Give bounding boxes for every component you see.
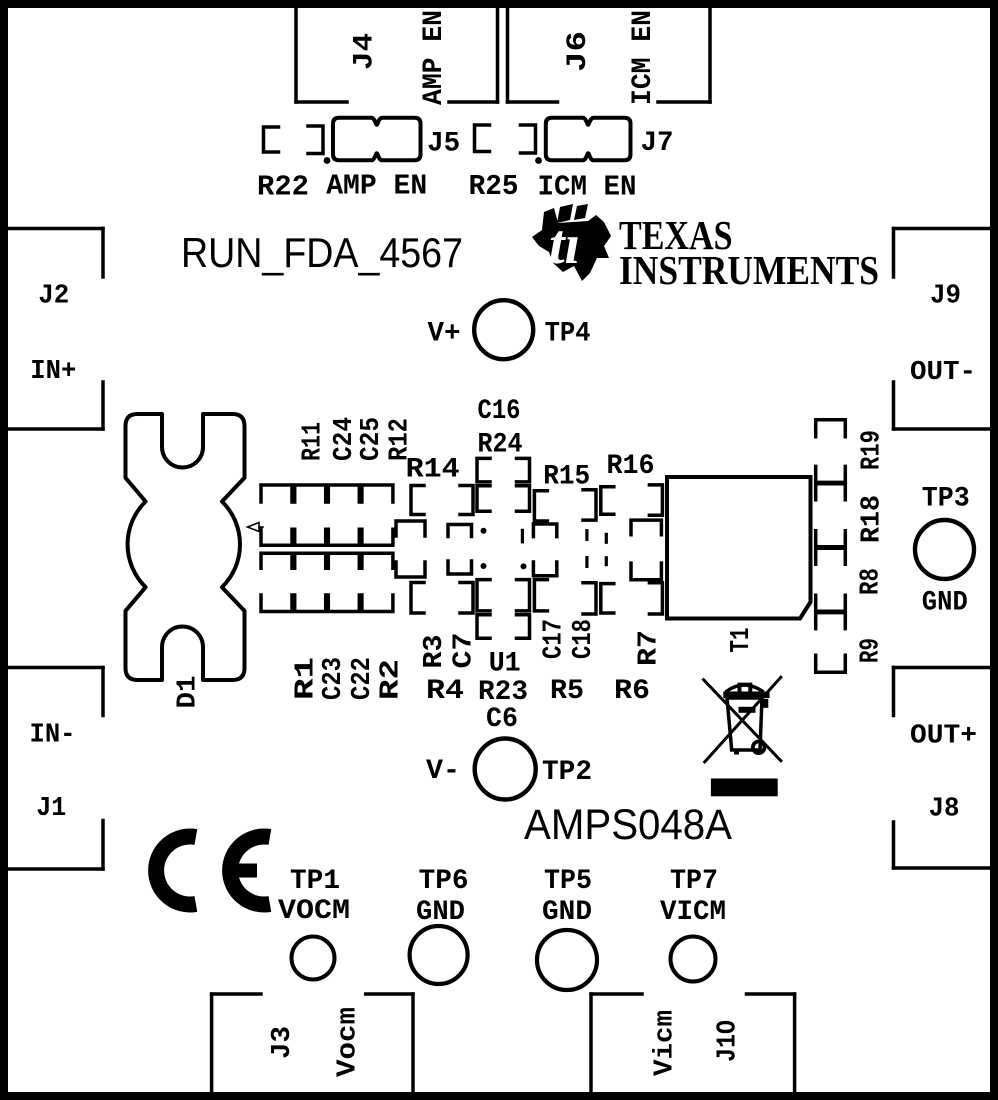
svg-text:C18: C18 — [569, 619, 599, 659]
svg-text:R25: R25 — [469, 170, 519, 203]
svg-text:C16: C16 — [478, 396, 521, 427]
svg-text:TP7: TP7 — [670, 866, 718, 897]
svg-text:Vocm: Vocm — [334, 1007, 364, 1077]
svg-text:OUT-: OUT- — [910, 358, 976, 388]
svg-text:ICM EN: ICM EN — [538, 171, 637, 204]
svg-text:C6: C6 — [486, 704, 518, 735]
svg-text:D1: D1 — [174, 676, 204, 709]
svg-text:GND: GND — [416, 897, 465, 928]
svg-text:R7: R7 — [634, 630, 664, 666]
svg-text:J4: J4 — [349, 33, 380, 70]
svg-text:R15: R15 — [543, 462, 590, 493]
svg-text:C24: C24 — [330, 417, 360, 461]
svg-text:TP5: TP5 — [544, 866, 592, 897]
svg-text:AMPS048A: AMPS048A — [524, 801, 732, 849]
svg-text:OUT+: OUT+ — [910, 722, 977, 752]
svg-text:C7: C7 — [450, 633, 480, 669]
svg-text:Vicm: Vicm — [651, 1010, 681, 1076]
svg-text:U1: U1 — [489, 649, 521, 680]
svg-text:tı: tı — [549, 214, 580, 276]
svg-text:R9: R9 — [857, 638, 887, 663]
svg-text:C17: C17 — [540, 619, 570, 659]
svg-text:R14: R14 — [406, 455, 460, 486]
svg-text:J9: J9 — [930, 282, 961, 312]
svg-text:VOCM: VOCM — [278, 896, 350, 927]
svg-text:R18: R18 — [858, 495, 888, 543]
svg-text:R2: R2 — [376, 659, 406, 700]
svg-text:J7: J7 — [641, 128, 674, 159]
svg-text:R24: R24 — [478, 430, 523, 461]
svg-text:C22: C22 — [348, 657, 378, 700]
svg-text:R1: R1 — [292, 657, 322, 700]
svg-text:R19: R19 — [858, 430, 888, 470]
svg-text:R3: R3 — [420, 635, 450, 669]
svg-text:J6: J6 — [563, 31, 594, 72]
svg-text:J3: J3 — [268, 1026, 298, 1059]
svg-text:R16: R16 — [607, 451, 655, 482]
svg-text:TP1: TP1 — [290, 866, 340, 897]
svg-text:R4: R4 — [426, 676, 464, 707]
svg-text:TP2: TP2 — [542, 757, 592, 788]
svg-text:ICM EN: ICM EN — [628, 10, 659, 105]
svg-text:J8: J8 — [929, 795, 960, 825]
svg-text:RUN_FDA_4567: RUN_FDA_4567 — [181, 229, 463, 276]
svg-text:J2: J2 — [38, 282, 69, 312]
svg-text:R11: R11 — [299, 422, 329, 461]
svg-text:C25: C25 — [357, 417, 387, 461]
svg-text:C23: C23 — [319, 657, 349, 700]
svg-text:TP3: TP3 — [922, 484, 970, 515]
svg-text:R22: R22 — [257, 171, 309, 204]
svg-text:R8: R8 — [857, 568, 887, 595]
svg-text:AMP EN: AMP EN — [326, 170, 427, 203]
svg-text:GND: GND — [542, 897, 592, 928]
svg-text:J5: J5 — [427, 129, 460, 160]
svg-text:R5: R5 — [550, 676, 584, 707]
svg-text:J1O: J1O — [714, 1020, 744, 1062]
svg-text:TP6: TP6 — [419, 866, 469, 897]
svg-text:J1: J1 — [36, 794, 66, 824]
svg-text:AMP EN: AMP EN — [419, 10, 450, 105]
svg-text:IN-: IN- — [30, 721, 76, 751]
svg-text:TP4: TP4 — [545, 319, 591, 350]
svg-text:T1: T1 — [727, 628, 757, 653]
svg-text:R6: R6 — [614, 676, 650, 707]
svg-text:V-: V- — [426, 756, 460, 787]
svg-text:VICM: VICM — [660, 897, 726, 928]
svg-text:GND: GND — [922, 588, 968, 619]
svg-text:IN+: IN+ — [30, 357, 76, 387]
svg-text:V+: V+ — [428, 319, 461, 350]
svg-text:INSTRUMENTS: INSTRUMENTS — [619, 247, 879, 293]
